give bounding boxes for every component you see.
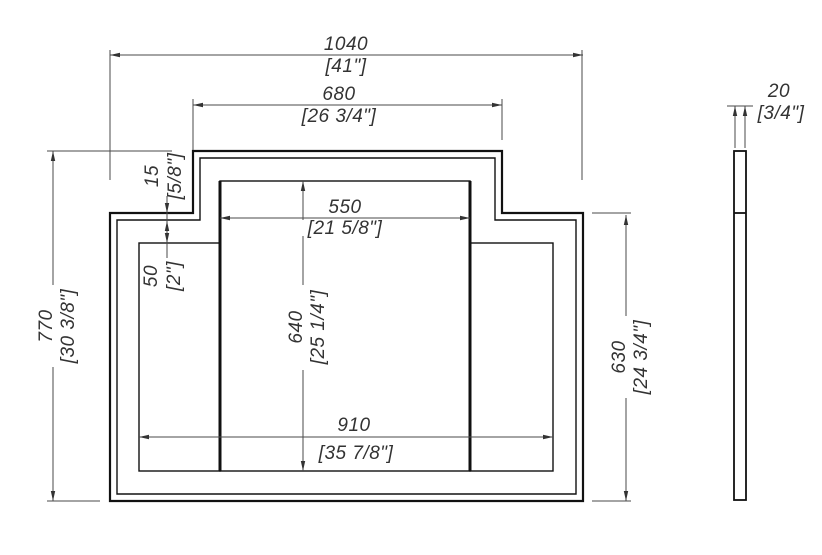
dim-label-panel-inset-in: [2"]	[164, 261, 185, 292]
arrowhead	[139, 435, 149, 439]
dim-label-frame-thickness-mm: 15	[142, 165, 163, 187]
arrowhead	[165, 233, 169, 243]
dim-label-upper-width-in: [26 3/4"]	[301, 106, 377, 127]
arrowhead	[301, 181, 305, 191]
arrowhead	[193, 103, 203, 107]
dim-label-side-height-mm: 630	[609, 340, 630, 373]
arrowhead	[51, 491, 55, 501]
dim-label-overall-width-mm: 1040	[324, 34, 368, 55]
arrowhead	[301, 461, 305, 471]
arrowhead	[543, 435, 553, 439]
arrowhead	[733, 106, 737, 116]
drawing-canvas: 1040 [41"] 680 [26 3/4"] 550 [21 5/8"] 9…	[0, 0, 822, 555]
dim-label-panels-width-mm: 910	[337, 415, 370, 436]
arrowhead	[110, 53, 120, 57]
dim-label-thickness-mm: 20	[767, 81, 790, 102]
dim-label-center-width-in: [21 5/8"]	[307, 218, 383, 239]
arrowhead	[743, 106, 747, 116]
dim-label-thickness-in: [3/4"]	[757, 103, 805, 124]
dim-label-overall-height-in: [30 3/8"]	[58, 288, 79, 364]
dim-label-center-width-mm: 550	[328, 197, 361, 218]
technical-drawing: 1040 [41"] 680 [26 3/4"] 550 [21 5/8"] 9…	[0, 0, 822, 555]
dim-label-overall-width-in: [41"]	[325, 56, 367, 77]
dim-label-side-height-in: [24 3/4"]	[631, 319, 652, 395]
dim-label-overall-height-mm: 770	[36, 309, 57, 342]
arrowhead	[624, 491, 628, 501]
dim-label-panels-width-in: [35 7/8"]	[318, 443, 394, 464]
dim-label-center-height-in: [25 1/4"]	[308, 289, 329, 365]
dim-label-frame-thickness-in: [5/8"]	[165, 152, 186, 200]
profile-outline	[734, 151, 746, 500]
arrowhead	[165, 221, 169, 231]
arrowhead	[51, 151, 55, 161]
arrowhead	[165, 203, 169, 213]
label-masks	[34, 220, 650, 398]
dim-label-panel-inset-mm: 50	[141, 265, 162, 287]
dim-label-center-height-mm: 640	[286, 310, 307, 343]
arrowhead	[624, 215, 628, 225]
arrowhead	[492, 103, 502, 107]
dim-label-upper-width-mm: 680	[322, 84, 355, 105]
side-profile-view	[734, 151, 746, 500]
dimension-labels: 1040 [41"] 680 [26 3/4"] 550 [21 5/8"] 9…	[36, 34, 805, 464]
